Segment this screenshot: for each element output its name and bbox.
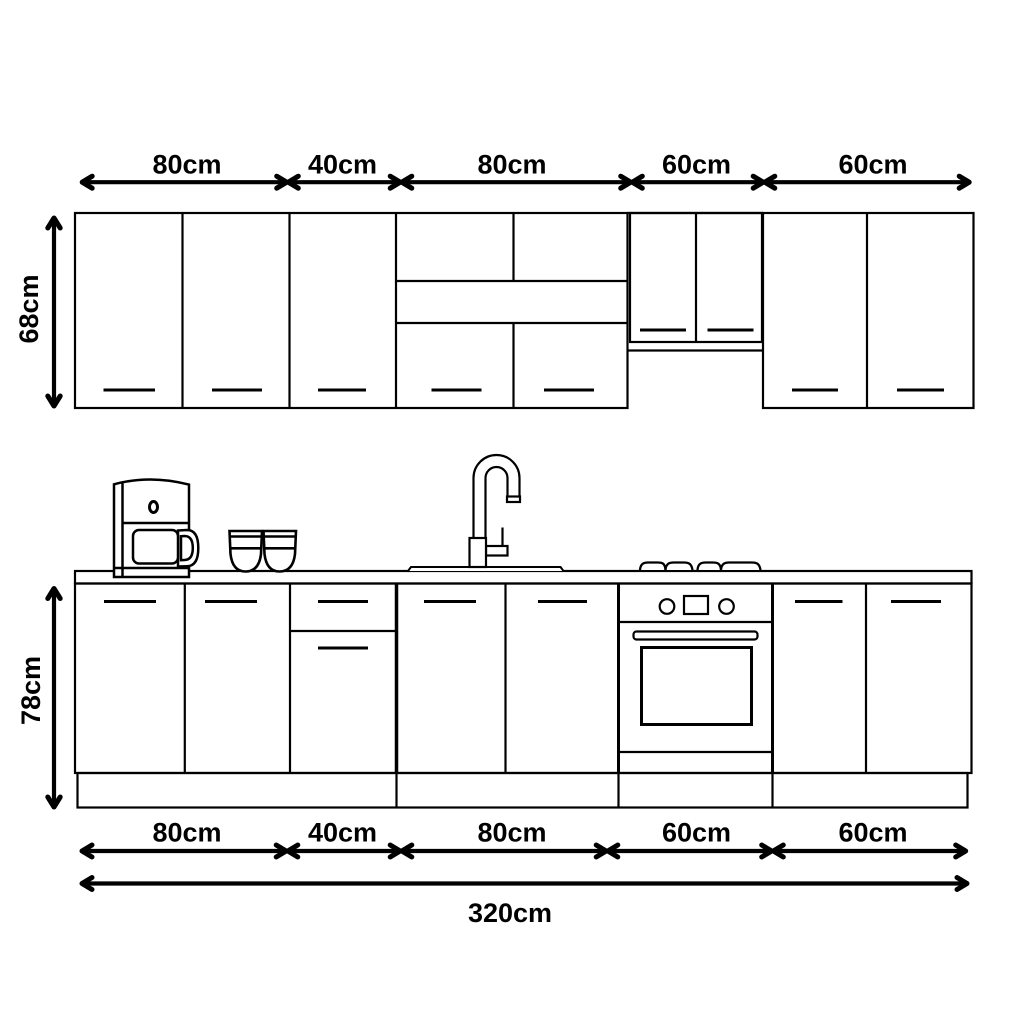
svg-text:80cm: 80cm bbox=[152, 818, 221, 848]
svg-text:68cm: 68cm bbox=[14, 274, 44, 343]
svg-text:40cm: 40cm bbox=[308, 818, 377, 848]
svg-text:80cm: 80cm bbox=[477, 818, 546, 848]
svg-text:60cm: 60cm bbox=[838, 150, 907, 180]
svg-text:60cm: 60cm bbox=[838, 818, 907, 848]
svg-text:78cm: 78cm bbox=[16, 656, 46, 725]
svg-text:320cm: 320cm bbox=[468, 898, 552, 928]
svg-text:60cm: 60cm bbox=[662, 150, 731, 180]
svg-text:80cm: 80cm bbox=[477, 150, 546, 180]
svg-text:40cm: 40cm bbox=[308, 150, 377, 180]
svg-text:60cm: 60cm bbox=[662, 818, 731, 848]
svg-text:80cm: 80cm bbox=[152, 150, 221, 180]
